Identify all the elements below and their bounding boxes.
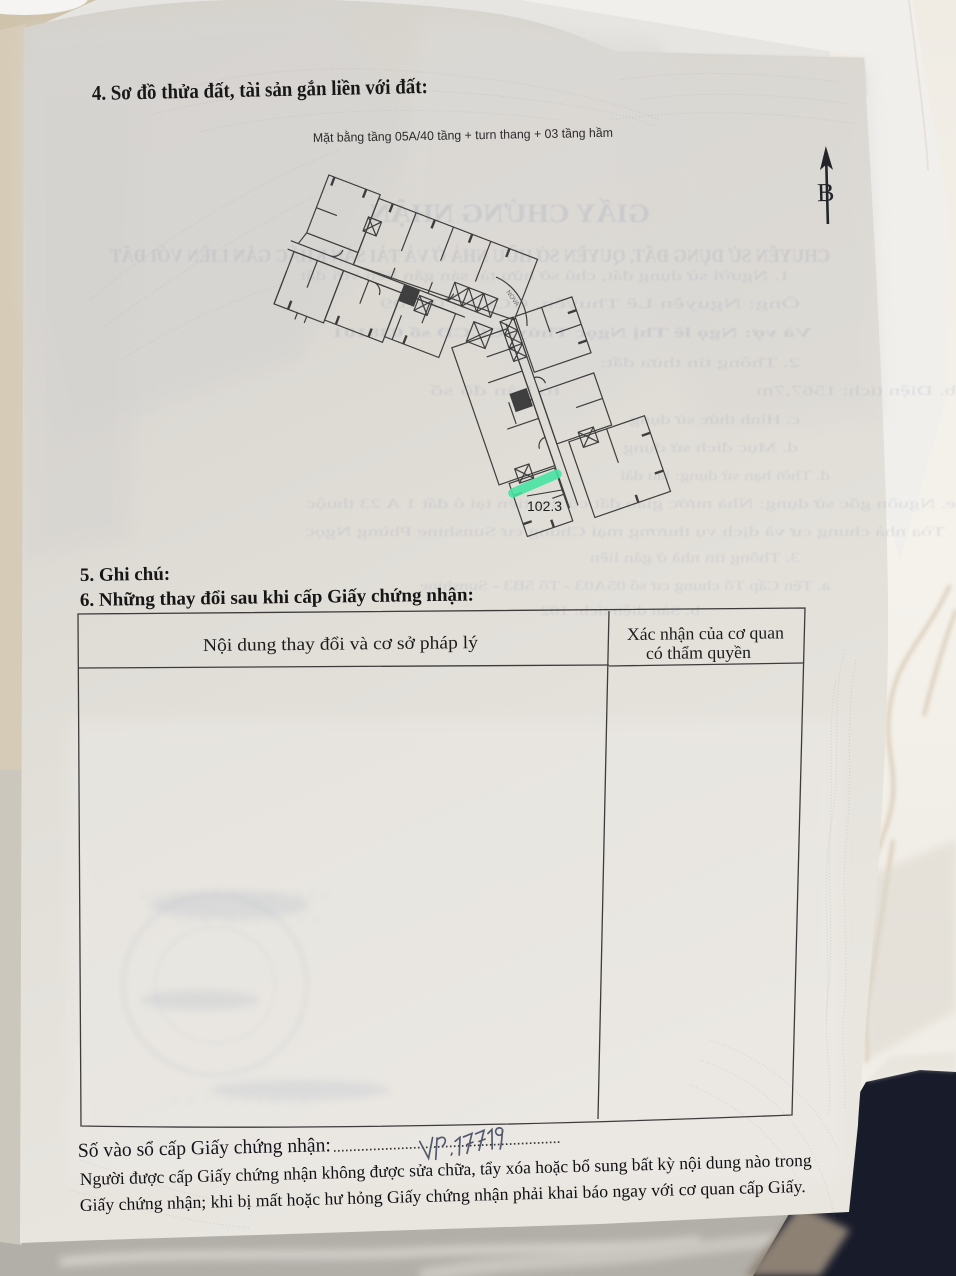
- svg-text:102.3: 102.3: [527, 498, 562, 514]
- svg-text:Xác nhận của cơ quan: Xác nhận của cơ quan: [627, 622, 784, 644]
- svg-text:đ. Thời hạn sử dụng: lâu dài: đ. Thời hạn sử dụng: lâu dài: [620, 469, 830, 484]
- svg-text:có thẩm quyền: có thẩm quyền: [646, 642, 751, 663]
- svg-text:b. Sàn diện tích: 102: b. Sàn diện tích: 102: [540, 604, 700, 619]
- svg-text:3. Thông tin nhà ở gắn liền: 3. Thông tin nhà ở gắn liền: [590, 551, 800, 566]
- svg-text:Ông: Nguyễn Lê Thuyên, CCCD: 0: Ông: Nguyễn Lê Thuyên, CCCD: 00109: [380, 295, 800, 312]
- svg-text:Tòa nhà chung cư và dịch vụ th: Tòa nhà chung cư và dịch vụ thương mại C…: [305, 525, 945, 540]
- svg-text:c. Hình thức sử dụng: c. Hình thức sử dụng: [630, 413, 800, 428]
- svg-text:2. Thông tin thửa đất:: 2. Thông tin thửa đất:: [600, 356, 800, 371]
- svg-text:B: B: [817, 178, 835, 207]
- svg-text:5. Ghi chú:: 5. Ghi chú:: [80, 564, 171, 586]
- svg-text:Nội dung thay đổi và cơ sở phá: Nội dung thay đổi và cơ sở pháp lý: [203, 632, 478, 655]
- svg-text:a. Tên Cấp Tổ chung cư số 05A0: a. Tên Cấp Tổ chung cư số 05A03 - Tổ 5B3…: [420, 579, 830, 594]
- svg-text:d. Mục đích sử dụng: d. Mục đích sử dụng: [623, 441, 798, 456]
- svg-text:b. Diện tích: 1567,7m: b. Diện tích: 1567,7m: [756, 384, 956, 399]
- svg-text:CHUYỂN SỬ DỤNG ĐẤT, QUYỀN SỞ H: CHUYỂN SỬ DỤNG ĐẤT, QUYỀN SỞ HỮU NHÀ Ở V…: [110, 245, 830, 267]
